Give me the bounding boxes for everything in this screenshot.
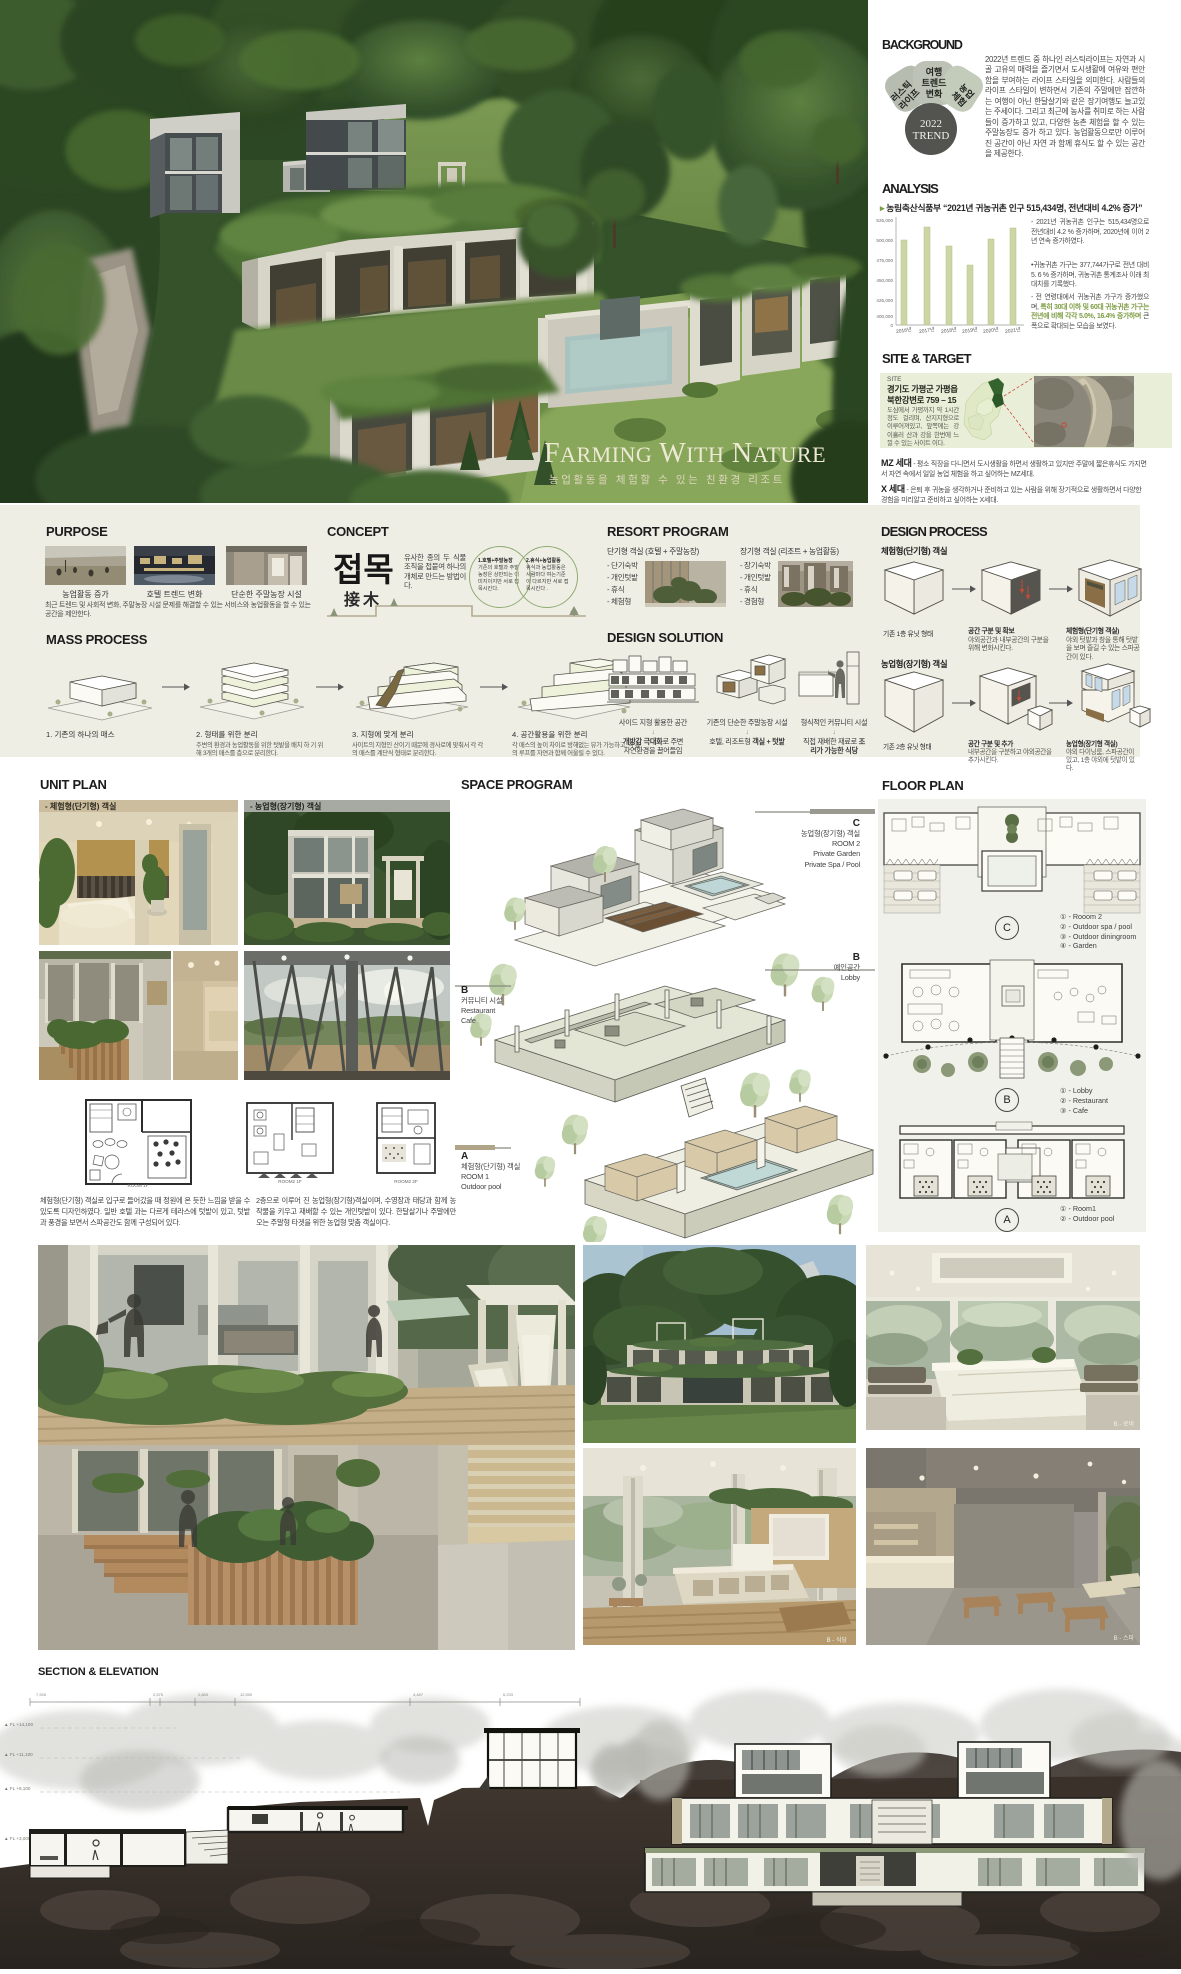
svg-text:2,865: 2,865 [198,1692,209,1697]
svg-text:6,233: 6,233 [503,1692,514,1697]
svg-text:B - 식당: B - 식당 [827,1636,848,1644]
svg-text:2,575: 2,575 [153,1692,164,1697]
svg-text:425,000: 425,000 [876,298,893,303]
svg-text:0: 0 [890,323,893,328]
svg-text:525,000: 525,000 [876,218,893,223]
svg-text:500,000: 500,000 [876,238,893,243]
svg-text:변화: 변화 [926,88,943,99]
svg-text:450,000: 450,000 [876,278,893,283]
svg-text:B - 스파: B - 스파 [1114,1634,1135,1642]
svg-text:2016년: 2016년 [896,326,913,333]
svg-text:2021년: 2021년 [1005,326,1022,333]
svg-text:여행: 여행 [926,66,943,77]
svg-text:트렌드: 트렌드 [922,77,948,88]
svg-text:ROOM2 1F: ROOM2 1F [278,1179,302,1184]
svg-text:12,500: 12,500 [240,1692,253,1697]
svg-text:- 농업형(장기형) 객실: - 농업형(장기형) 객실 [250,801,321,811]
svg-text:ROOM 1F: ROOM 1F [128,1183,149,1188]
svg-text:▲ FL +11,100: ▲ FL +11,100 [4,1752,33,1757]
svg-text:475,000: 475,000 [876,258,893,263]
svg-text:400,000: 400,000 [876,314,893,319]
svg-text:4,487: 4,487 [413,1692,424,1697]
svg-text:▲ FL +3,000: ▲ FL +3,000 [4,1836,31,1841]
svg-text:2020년: 2020년 [983,326,1000,333]
svg-text:▲ FL +8,100: ▲ FL +8,100 [4,1786,31,1791]
svg-text:7,926: 7,926 [36,1692,47,1697]
svg-text:TREND: TREND [913,130,950,142]
svg-text:2019년: 2019년 [962,326,979,333]
svg-text:- 체험형(단기형) 객실: - 체험형(단기형) 객실 [45,801,116,811]
svg-text:2017년: 2017년 [919,326,936,333]
svg-text:B - 로비: B - 로비 [1114,1420,1134,1428]
svg-text:2022: 2022 [920,118,942,130]
svg-text:2018년: 2018년 [941,326,958,333]
svg-text:ROOM2 2F: ROOM2 2F [394,1179,418,1184]
svg-text:▲ FL +14,100: ▲ FL +14,100 [4,1722,33,1727]
